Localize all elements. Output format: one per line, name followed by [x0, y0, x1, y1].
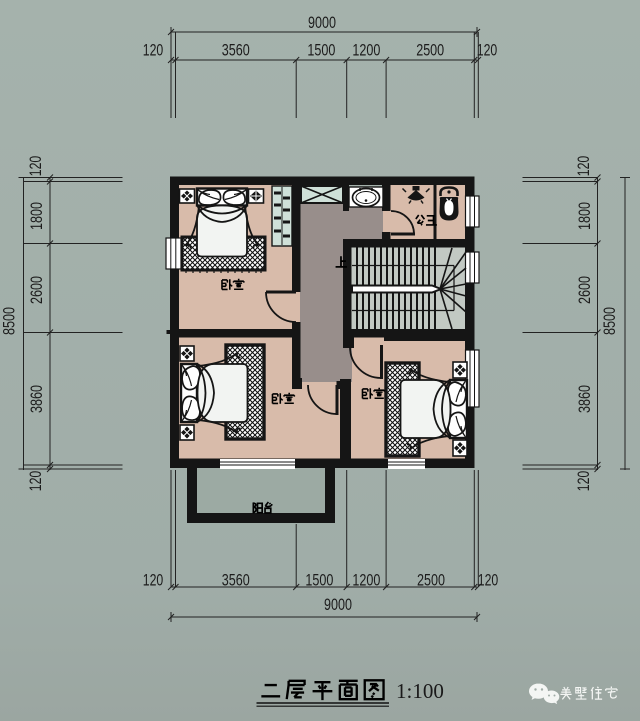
- svg-text:3560: 3560: [222, 572, 250, 590]
- svg-text:120: 120: [27, 156, 45, 177]
- svg-text:120: 120: [477, 42, 498, 60]
- svg-text:120: 120: [575, 471, 593, 492]
- svg-text:120: 120: [143, 42, 164, 60]
- svg-text:1500: 1500: [307, 42, 335, 60]
- svg-text:3560: 3560: [222, 42, 250, 60]
- svg-text:2600: 2600: [576, 276, 594, 304]
- svg-text:1200: 1200: [352, 42, 380, 60]
- svg-text:120: 120: [575, 156, 593, 177]
- svg-text:1:100: 1:100: [396, 679, 444, 703]
- svg-text:2500: 2500: [416, 42, 444, 60]
- svg-text:1500: 1500: [305, 572, 333, 590]
- svg-text:3860: 3860: [28, 385, 46, 413]
- svg-text:2500: 2500: [417, 572, 445, 590]
- svg-text:3860: 3860: [576, 385, 594, 413]
- svg-text:2600: 2600: [28, 276, 46, 304]
- svg-text:9000: 9000: [308, 14, 336, 32]
- svg-text:1800: 1800: [576, 202, 594, 230]
- svg-text:9000: 9000: [324, 596, 352, 614]
- svg-text:120: 120: [143, 572, 164, 590]
- svg-text:120: 120: [478, 572, 499, 590]
- svg-text:120: 120: [27, 471, 45, 492]
- svg-text:8500: 8500: [601, 307, 619, 335]
- svg-text:1800: 1800: [28, 202, 46, 230]
- svg-text:1200: 1200: [352, 572, 380, 590]
- svg-text:8500: 8500: [1, 307, 19, 335]
